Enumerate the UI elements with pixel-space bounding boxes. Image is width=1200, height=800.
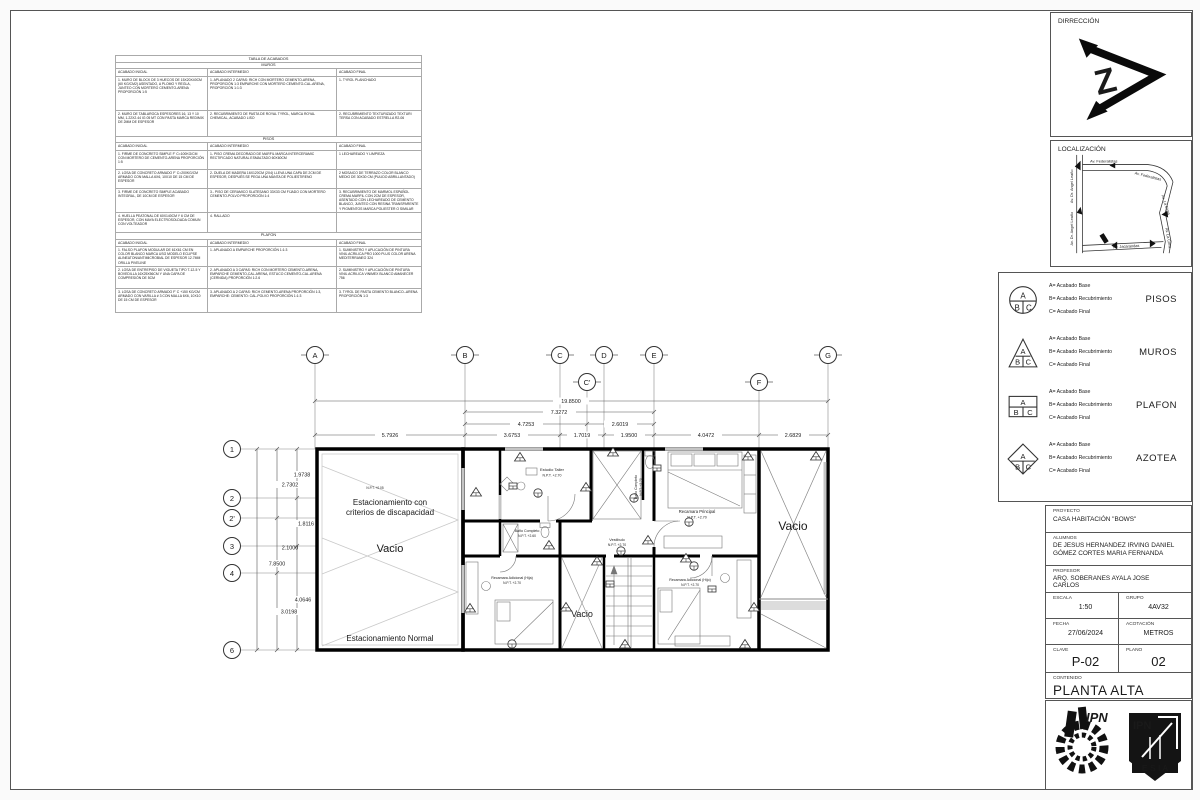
svg-text:A: A bbox=[1021, 397, 1026, 406]
clave-plano-row: CLAVE P-02 PLANO 02 bbox=[1046, 645, 1191, 673]
pisos-symbol-icon: A B C bbox=[1007, 284, 1039, 316]
table-cell: 2- RECUBRIMIENTO TEXTURIZADO TEXTURI TER… bbox=[337, 110, 422, 136]
svg-text:B: B bbox=[1014, 408, 1019, 417]
dim: 1.9500 bbox=[621, 433, 638, 439]
legend-box: A B C A= Acabado Base B= Acabado Recubri… bbox=[998, 272, 1192, 502]
svg-text:E S I A: E S I A bbox=[1142, 763, 1168, 773]
legend-line: B= Acabado Recubrimiento bbox=[1049, 346, 1112, 359]
room-label: Recamara Principal bbox=[679, 509, 716, 514]
room-npt: N.P.T. +2.70 bbox=[543, 474, 562, 478]
table-cell: 3. RECUBRIMIENTO DE MARMOL ESPAÑOL CREMA… bbox=[337, 188, 422, 212]
location-map: Av. Federalistas Av. Federalistas Av. Dr… bbox=[1053, 153, 1189, 257]
table-cell: 3.- PISO DE CERAMICO SLATESANO 33X33 CM … bbox=[208, 188, 337, 212]
legend-name: PLAFON bbox=[1136, 400, 1177, 411]
acotacion-value: METROS bbox=[1126, 630, 1191, 637]
parking-block: N.P.T. +0.05 Estacionamiento con criteri… bbox=[317, 449, 463, 650]
legend-name: PISOS bbox=[1145, 294, 1177, 305]
escala-grupo-row: ESCALA 1:50 GRUPO 4AV32 bbox=[1046, 593, 1191, 619]
principal-furniture bbox=[664, 452, 756, 548]
svg-text:B: B bbox=[1015, 357, 1020, 366]
legend-line: B= Acabado Recubrimiento bbox=[1049, 293, 1112, 306]
dim: 7.8500 bbox=[269, 562, 286, 568]
axis-bubbles-top: A B C D E G C' F bbox=[301, 347, 842, 391]
clave-label: CLAVE bbox=[1053, 648, 1118, 653]
room-label: Estacionamiento con bbox=[353, 498, 427, 507]
titleblock: PROYECTO CASA HABITACIÓN "BOWS" ALUMNOS … bbox=[1045, 505, 1192, 699]
svg-text:Z: Z bbox=[1091, 61, 1121, 103]
legend-name: AZOTEA bbox=[1136, 453, 1177, 464]
clave-value: P-02 bbox=[1053, 654, 1118, 669]
table-title: TABLA DE ACABADOS bbox=[116, 56, 422, 63]
axis-label: 1 bbox=[230, 445, 234, 454]
axis-label: C' bbox=[584, 378, 591, 387]
table-cell: 1. FIRME DE CONCRETO SIMPLE F' C=100KG/C… bbox=[116, 150, 208, 169]
ipn-logo: IPN bbox=[1060, 707, 1108, 769]
alumnos-label: ALUMNOS bbox=[1053, 536, 1191, 541]
proyecto-row: PROYECTO CASA HABITACIÓN "BOWS" bbox=[1046, 506, 1191, 533]
vacio-small bbox=[562, 558, 602, 648]
table-cell: 2. LOSA DE CONCRETO ARMADO F' C=200KG/CM… bbox=[116, 169, 208, 188]
section-muros: MUROS bbox=[116, 62, 422, 69]
col-header: ACABADO INTERMEDIO bbox=[208, 143, 337, 150]
fecha-acotacion-row: FECHA 27/06/2024 ACOTACIÓN METROS bbox=[1046, 619, 1191, 645]
legend-entry-pisos: A B C A= Acabado Base B= Acabado Recubri… bbox=[999, 273, 1191, 326]
axis-label: A bbox=[312, 351, 317, 360]
col-header: ACABADO FINAL bbox=[337, 69, 422, 76]
logos: IPN IPN E S I A bbox=[1046, 701, 1189, 787]
fecha-value: 27/06/2024 bbox=[1053, 630, 1118, 637]
legend-line: A= Acabado Base bbox=[1049, 280, 1112, 293]
dim: 2.7302 bbox=[282, 483, 299, 489]
axis-label: C bbox=[557, 351, 563, 360]
dim: 2.6019 bbox=[612, 422, 629, 428]
room-npt: N.P.T. +2.70 bbox=[639, 478, 643, 495]
svg-text:C: C bbox=[1027, 408, 1033, 417]
dim: 3.6753 bbox=[504, 433, 521, 439]
axis-bubbles-left: 1 2 2' 3 4 6 bbox=[224, 441, 241, 659]
room-label: criterios de discapacidad bbox=[346, 508, 434, 517]
axis-label: D bbox=[601, 351, 607, 360]
room-npt: N.P.T. +0.05 bbox=[366, 486, 383, 490]
svg-text:C: C bbox=[1026, 462, 1032, 471]
svg-text:IPN: IPN bbox=[1086, 710, 1108, 725]
dim: 1.8116 bbox=[298, 522, 314, 528]
table-cell: 2. LOSA DE ENTREPISO DE VIGUETA TIPO T-1… bbox=[116, 266, 208, 288]
svg-text:C: C bbox=[1026, 357, 1032, 366]
north-arrow-icon: Z bbox=[1073, 27, 1173, 123]
axis-label: 2 bbox=[230, 494, 234, 503]
profesor-row: PROFESOR ARQ. SOBERANES AYALA JOSE CARLO… bbox=[1046, 566, 1191, 593]
axis-label: 6 bbox=[230, 646, 234, 655]
room-label: Recamara Adicional (Hijo) bbox=[669, 578, 711, 582]
dim: 4.7253 bbox=[518, 422, 535, 428]
axis-label: B bbox=[462, 351, 467, 360]
plano-label: PLANO bbox=[1126, 648, 1191, 653]
floor-plan: A B C D E G C' F 1 2 2' 3 4 6 19.8500 7.… bbox=[215, 330, 855, 675]
legend-line: A= Acabado Base bbox=[1049, 439, 1112, 452]
contenido-value: PLANTA ALTA bbox=[1053, 683, 1191, 698]
location-box: LOCALIZACIÓN Av. Federalistas Av. Federa… bbox=[1050, 140, 1192, 267]
room-label: Estudio Taller bbox=[540, 467, 565, 472]
street-label: Av. La Cima bbox=[1164, 228, 1172, 250]
dim: 7.3272 bbox=[551, 410, 568, 416]
table-cell: 3. FIRME DE CONCRETO SIMPLE ACABADO INTE… bbox=[116, 188, 208, 212]
proyecto-label: PROYECTO bbox=[1053, 509, 1191, 514]
svg-text:B: B bbox=[1015, 462, 1020, 471]
table-cell: 1- PISO CREMA DECORADO DE MARFIL MARCA I… bbox=[208, 150, 337, 169]
dimension-labels-left: 1.9738 2.7302 1.8116 2.1000 7.8500 4.064… bbox=[262, 471, 321, 616]
room-label: Baño Completo bbox=[634, 475, 638, 499]
grupo-label: GRUPO bbox=[1126, 596, 1191, 601]
table-cell: 2. MURO DE TABLAROCA ESPESORES 16, 13 Y … bbox=[116, 110, 208, 136]
legend-line: A= Acabado Base bbox=[1049, 386, 1112, 399]
plafon-symbol-icon: A B C bbox=[1007, 390, 1039, 422]
table-cell: 1. APLANADO 2 CAPAS: RICH CON MORTERO CE… bbox=[208, 76, 337, 110]
alumnos-row: ALUMNOS DE JESUS HERNANDEZ IRVING DANIEL… bbox=[1046, 533, 1191, 566]
legend-line: C= Acabado Final bbox=[1049, 359, 1112, 372]
svg-text:B: B bbox=[1014, 303, 1019, 312]
table-cell: 1 LECHAREADO Y LIMPIEZA bbox=[337, 150, 422, 169]
svg-text:A: A bbox=[1020, 291, 1026, 300]
direction-label: DIRRECCIÓN bbox=[1051, 13, 1191, 25]
table-cell: 1. APLANADO A EMPARCHE PROPORCIÓN 1:1:3 bbox=[208, 246, 337, 266]
table-cell bbox=[337, 212, 422, 232]
col-header: ACABADO INICIAL bbox=[116, 143, 208, 150]
room-label: Vestibulo bbox=[609, 538, 624, 542]
table-cell: 2- DUELA DE MADERA 16X120CM (2X4) LLEVA … bbox=[208, 169, 337, 188]
col-header: ACABADO FINAL bbox=[337, 143, 422, 150]
legend-name: MUROS bbox=[1139, 347, 1177, 358]
dim: 1.9738 bbox=[294, 473, 311, 479]
axis-label: E bbox=[651, 351, 656, 360]
room-npt: N.P.T. +2.70 bbox=[681, 583, 699, 587]
contenido-row: CONTENIDO PLANTA ALTA bbox=[1046, 673, 1191, 699]
col-header: ACABADO INICIAL bbox=[116, 69, 208, 76]
room-npt: N.P.T. +2.70 bbox=[687, 516, 706, 520]
fecha-label: FECHA bbox=[1053, 622, 1118, 627]
dim: 1.7019 bbox=[574, 433, 591, 439]
table-cell: 3. APLANADO A 2 CAPAS: RICH CEMENTO-AREN… bbox=[208, 288, 337, 312]
legend-entry-muros: A B C A= Acabado Base B= Acabado Recubri… bbox=[999, 326, 1191, 379]
room-label: Recamara Adicional (Hija) bbox=[491, 576, 533, 580]
plano-value: 02 bbox=[1126, 654, 1191, 669]
hija-furniture bbox=[466, 562, 553, 644]
table-cell: 1. MURO DE BLOCK DE 3 HUECOS DE 15X20X40… bbox=[116, 76, 208, 110]
room-label: Vacio bbox=[571, 609, 593, 619]
dim: 2.1000 bbox=[282, 546, 299, 552]
col-header: ACABADO FINAL bbox=[337, 239, 422, 246]
axis-label: 3 bbox=[230, 542, 234, 551]
legend-line: C= Acabado Final bbox=[1049, 412, 1112, 425]
table-cell: 1. FALSO PLAFON MODULAR DE 61X61 CM EN C… bbox=[116, 246, 208, 266]
profesor-label: PROFESOR bbox=[1053, 569, 1191, 574]
finishes-table: TABLA DE ACABADOS MUROS ACABADO INICIAL … bbox=[115, 55, 422, 313]
dim: 3.0198 bbox=[281, 610, 298, 616]
profesor-value: ARQ. SOBERANES AYALA JOSE CARLOS bbox=[1053, 575, 1173, 589]
stairs bbox=[606, 558, 652, 648]
legend-entry-azotea: A B C A= Acabado Base B= Acabado Recubri… bbox=[999, 432, 1191, 485]
table-cell: 2. SUMINISTRO Y APLICACIÓN DE PINTURA VI… bbox=[337, 266, 422, 288]
grupo-value: 4AV32 bbox=[1126, 604, 1191, 611]
direction-box: DIRRECCIÓN Z bbox=[1050, 12, 1192, 137]
esia-logo: IPN E S I A bbox=[1129, 713, 1181, 781]
room-npt: N.P.T. +2.60 bbox=[518, 534, 536, 538]
acotacion-label: ACOTACIÓN bbox=[1126, 622, 1191, 627]
table-cell: 2 MOSAICO DE TERRAZO COLOR BLANCO MEDIO … bbox=[337, 169, 422, 188]
section-plafon: PLAFON bbox=[116, 232, 422, 239]
svg-text:IPN: IPN bbox=[1133, 720, 1151, 732]
location-label: LOCALIZACIÓN bbox=[1051, 141, 1191, 153]
room-label: Vacio bbox=[778, 519, 807, 533]
street-label: Av. Dr. Angel Leaño bbox=[1070, 169, 1074, 203]
dim-overall: 19.8500 bbox=[561, 399, 581, 405]
legend-line: A= Acabado Base bbox=[1049, 333, 1112, 346]
col-header: ACABADO INTERMEDIO bbox=[208, 69, 337, 76]
axis-label: 2' bbox=[229, 514, 235, 523]
table-cell: 4. RALLADO bbox=[208, 212, 337, 232]
room-label: Estacionamiento Normal bbox=[346, 634, 433, 643]
room-label: Vacio bbox=[377, 543, 404, 555]
table-cell: 1- TYROL PLANCHADO bbox=[337, 76, 422, 110]
alumno-2: GÓMEZ CORTES MARIA FERNANDA bbox=[1053, 550, 1191, 557]
azotea-symbol-icon: A B C bbox=[1007, 443, 1039, 475]
legend-line: B= Acabado Recubrimiento bbox=[1049, 399, 1112, 412]
svg-text:C: C bbox=[1026, 303, 1032, 312]
street-label: Av. Dr. Angel Leaño bbox=[1070, 212, 1074, 246]
muros-symbol-icon: A B C bbox=[1007, 337, 1039, 369]
table-cell: 3. TYROL DE PASTA CEMENTO BLANCO--ARENA … bbox=[337, 288, 422, 312]
dim: 4.0472 bbox=[698, 433, 715, 439]
dim: 4.0646 bbox=[295, 598, 312, 604]
table-cell: 1. SUMINISTRO Y APLICACIÓN DE PINTURA VI… bbox=[337, 246, 422, 266]
alumno-1: DE JESUS HERNANDEZ IRVING DANIEL bbox=[1053, 542, 1191, 549]
room-label: Baño Completo bbox=[515, 529, 540, 533]
col-header: ACABADO INICIAL bbox=[116, 239, 208, 246]
legend-line: B= Acabado Recubrimiento bbox=[1049, 452, 1112, 465]
axis-label: F bbox=[757, 378, 762, 387]
dimension-labels-top: 19.8500 7.3272 4.7253 2.6019 5.7926 3.67… bbox=[375, 398, 809, 440]
legend-line: C= Acabado Final bbox=[1049, 465, 1112, 478]
room-npt: N.P.T. +2.70 bbox=[503, 581, 521, 585]
legend-line: C= Acabado Final bbox=[1049, 306, 1112, 319]
legend-entry-plafon: A B C A= Acabado Base B= Acabado Recubri… bbox=[999, 379, 1191, 432]
room-npt: N.P.T. +2.70 bbox=[608, 543, 626, 547]
dim: 5.7926 bbox=[382, 433, 399, 439]
shower-bath bbox=[593, 451, 655, 519]
contenido-label: CONTENIDO bbox=[1053, 676, 1191, 681]
escala-label: ESCALA bbox=[1053, 596, 1118, 601]
proyecto-value: CASA HABITACIÓN "BOWS" bbox=[1053, 516, 1191, 523]
escala-value: 1:50 bbox=[1053, 604, 1118, 611]
table-cell: 2. APLANADO A 3 CAPAS: RICH CON MORTERO … bbox=[208, 266, 337, 288]
col-header: ACABADO INTERMEDIO bbox=[208, 239, 337, 246]
axis-label: G bbox=[825, 351, 831, 360]
estudio-furniture bbox=[500, 468, 537, 491]
logos-box: IPN IPN E S I A bbox=[1045, 700, 1192, 790]
table-cell: 4. HUELLA PEATONAL DE 60X140CM Y 6 CM DE… bbox=[116, 212, 208, 232]
section-pisos: PISOS bbox=[116, 136, 422, 143]
street-label: Av. Federalistas bbox=[1134, 171, 1161, 181]
svg-text:A: A bbox=[1021, 452, 1026, 461]
axis-label: 4 bbox=[230, 569, 234, 578]
table-cell: 3. LOSA DE CONCRETO ARMADO F' C +150 KG/… bbox=[116, 288, 208, 312]
table-cell: 2. RECUBRIMIENTO DE PASTA DE ROYAL TYROL… bbox=[208, 110, 337, 136]
dim: 2.6829 bbox=[785, 433, 802, 439]
vacio-big bbox=[759, 451, 828, 648]
street-label: Av. Federalistas bbox=[1090, 160, 1117, 164]
svg-text:A: A bbox=[1021, 347, 1026, 356]
